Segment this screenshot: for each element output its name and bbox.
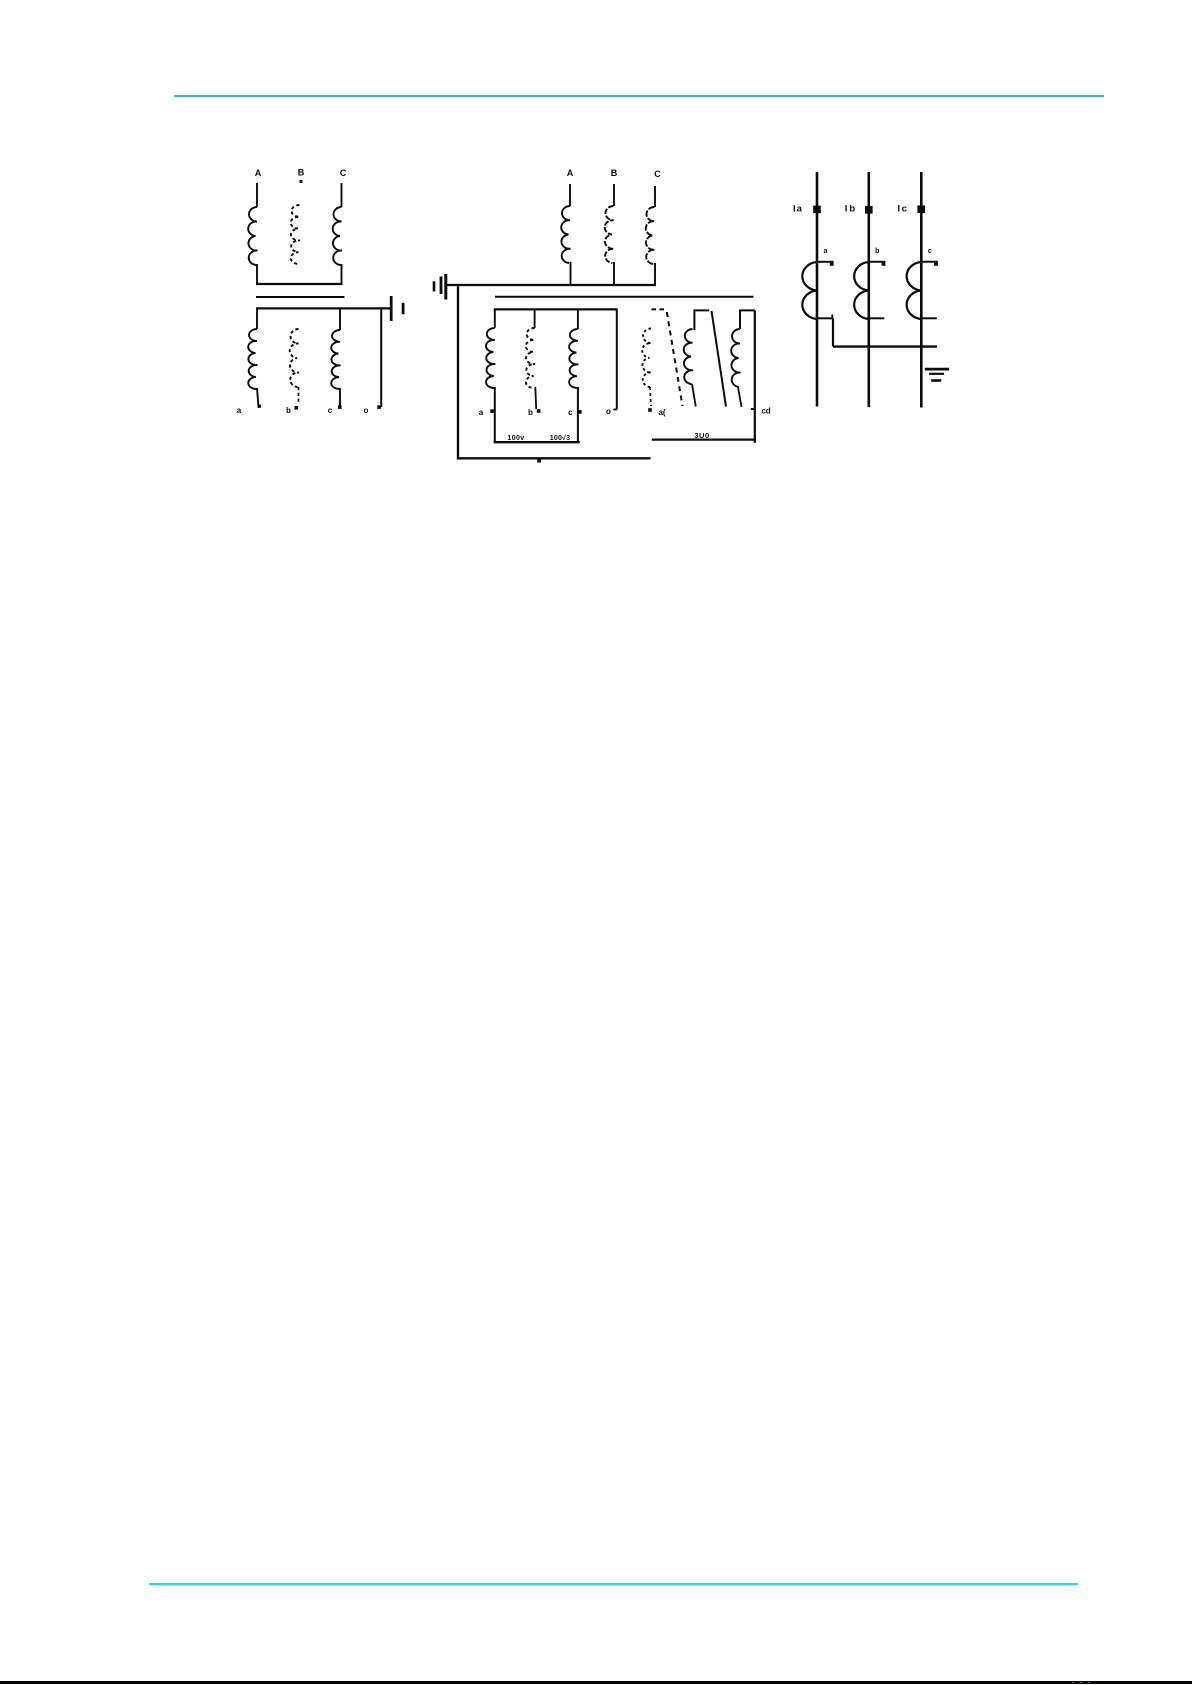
svg-text:100√3: 100√3 bbox=[550, 434, 570, 442]
svg-text:cd: cd bbox=[761, 407, 770, 416]
svg-text:B: B bbox=[298, 168, 305, 178]
svg-text:o: o bbox=[364, 406, 369, 415]
svg-text:a(: a( bbox=[658, 408, 665, 417]
svg-text:b: b bbox=[286, 406, 291, 415]
svg-text:A: A bbox=[567, 168, 574, 178]
svg-text:B: B bbox=[611, 168, 618, 178]
svg-text:c: c bbox=[928, 248, 932, 255]
svg-text:c: c bbox=[328, 406, 333, 415]
svg-text:Ib: Ib bbox=[845, 204, 857, 215]
svg-text:c: c bbox=[568, 408, 573, 417]
svg-text:Ic: Ic bbox=[898, 204, 909, 215]
svg-text:b: b bbox=[875, 248, 879, 255]
svg-text:a: a bbox=[824, 248, 828, 255]
svg-text:100v: 100v bbox=[507, 435, 524, 442]
svg-text:C: C bbox=[340, 168, 347, 178]
svg-text:o: o bbox=[606, 407, 611, 416]
svg-text:A: A bbox=[255, 168, 262, 178]
svg-text:a: a bbox=[237, 406, 242, 415]
svg-text:Ia: Ia bbox=[793, 204, 803, 215]
svg-text:a: a bbox=[479, 408, 484, 417]
svg-text:C: C bbox=[654, 169, 661, 179]
svg-text:b: b bbox=[528, 408, 533, 417]
svg-text:3U0: 3U0 bbox=[694, 431, 709, 440]
